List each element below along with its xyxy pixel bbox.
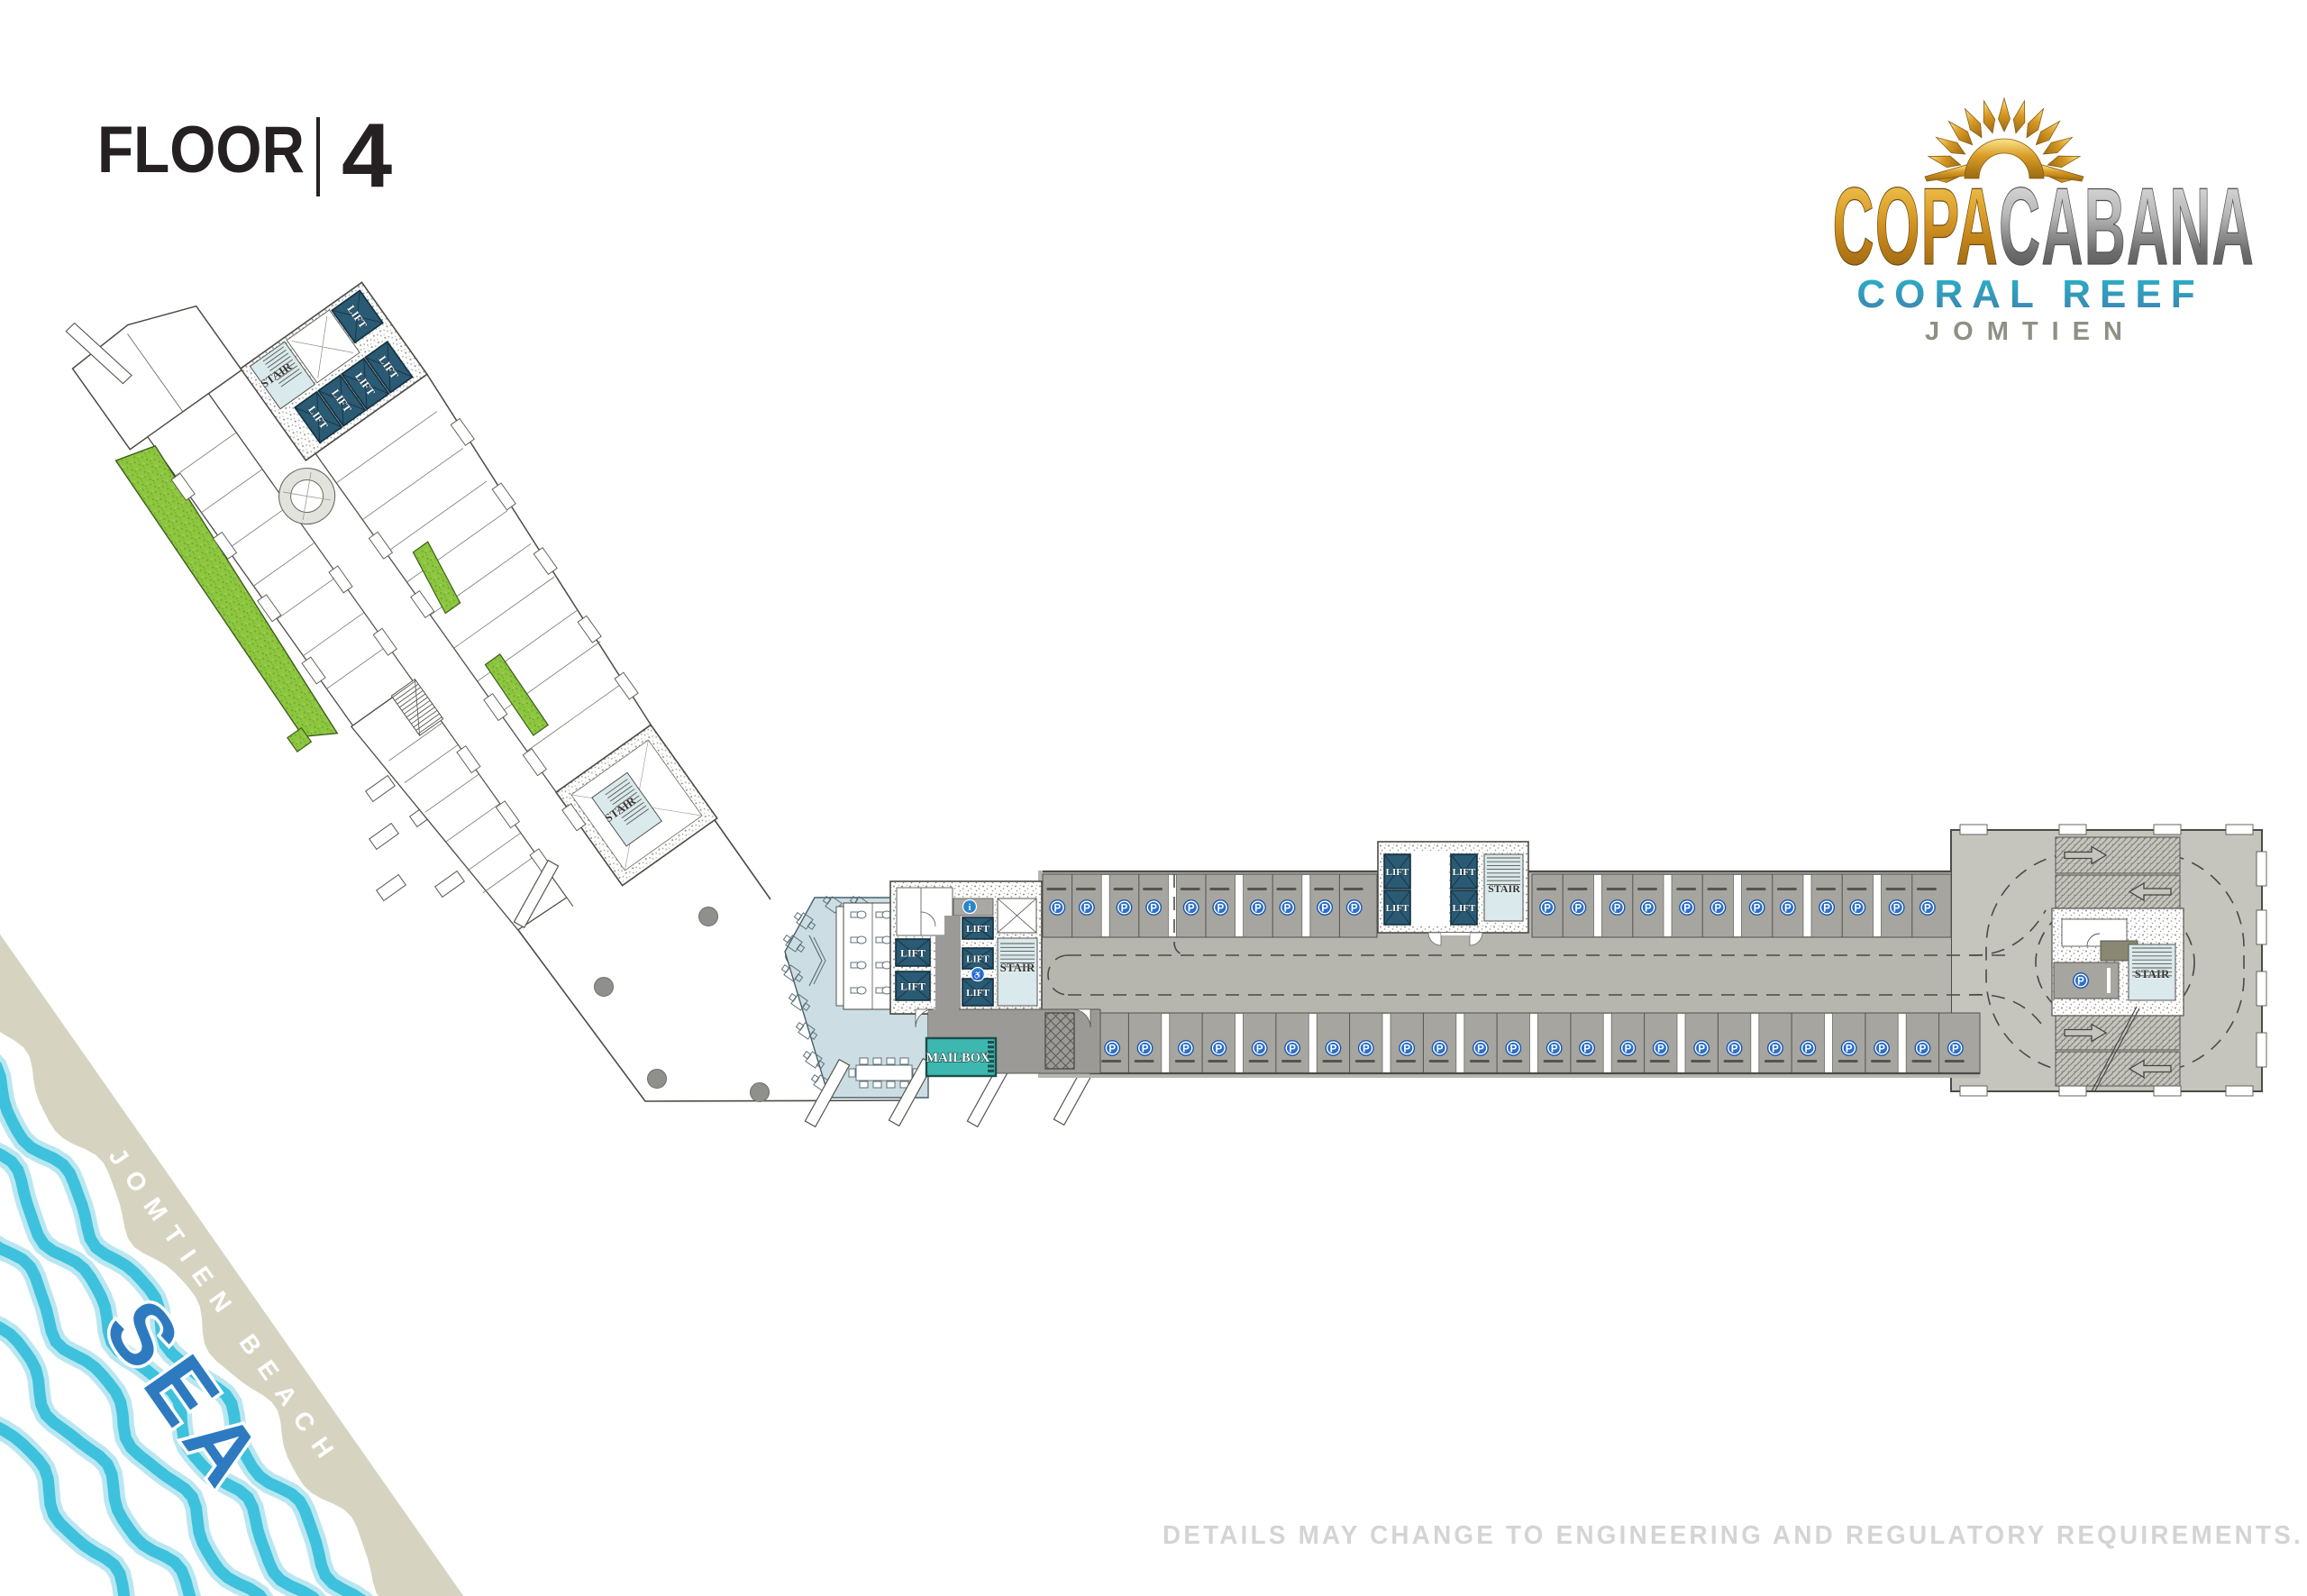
svg-text:P: P — [1182, 1044, 1190, 1054]
svg-text:STAIR: STAIR — [2135, 967, 2170, 980]
svg-text:P: P — [1614, 903, 1621, 914]
svg-text:P: P — [1403, 1044, 1410, 1054]
svg-text:P: P — [1142, 1044, 1149, 1054]
svg-text:P: P — [1823, 903, 1830, 914]
svg-text:P: P — [1731, 1044, 1738, 1054]
svg-text:P: P — [1575, 903, 1582, 914]
svg-text:P: P — [1053, 903, 1061, 914]
svg-text:P: P — [2077, 976, 2084, 987]
svg-text:P: P — [1217, 903, 1224, 914]
svg-text:P: P — [1919, 1044, 1927, 1054]
svg-text:P: P — [1351, 903, 1358, 914]
svg-text:LIFT: LIFT — [900, 980, 926, 992]
svg-text:♿: ♿ — [972, 970, 982, 980]
svg-text:P: P — [1924, 903, 1931, 914]
svg-text:P: P — [1683, 903, 1691, 914]
svg-text:P: P — [1215, 1044, 1222, 1054]
svg-text:P: P — [1150, 903, 1157, 914]
svg-text:LIFT: LIFT — [1453, 867, 1476, 878]
svg-text:P: P — [1284, 903, 1291, 914]
svg-text:LIFT: LIFT — [966, 953, 989, 964]
svg-text:STAIR: STAIR — [1000, 961, 1035, 974]
svg-text:P: P — [1321, 903, 1328, 914]
svg-text:DETAILS MAY CHANGE TO ENGINEER: DETAILS MAY CHANGE TO ENGINEERING AND RE… — [1163, 1521, 2303, 1550]
svg-text:4: 4 — [342, 105, 392, 206]
svg-text:MAILBOX: MAILBOX — [926, 1051, 990, 1065]
svg-text:P: P — [1509, 1044, 1517, 1054]
svg-text:P: P — [1121, 903, 1128, 914]
svg-text:COPA: COPA — [1833, 165, 1999, 287]
svg-text:P: P — [1583, 1044, 1591, 1054]
svg-text:P: P — [1772, 1044, 1779, 1054]
svg-text:STAIR: STAIR — [1488, 882, 1520, 895]
svg-text:P: P — [1436, 1044, 1444, 1054]
svg-text:P: P — [1083, 903, 1090, 914]
svg-text:FLOOR: FLOOR — [97, 113, 305, 187]
svg-text:LIFT: LIFT — [1386, 903, 1409, 914]
svg-text:CORAL REEF: CORAL REEF — [1856, 272, 2203, 316]
svg-text:i: i — [969, 903, 971, 913]
svg-text:P: P — [1254, 903, 1262, 914]
svg-text:P: P — [1715, 903, 1722, 914]
svg-text:P: P — [1878, 1044, 1885, 1054]
svg-text:P: P — [1330, 1044, 1337, 1054]
svg-text:P: P — [1893, 903, 1901, 914]
svg-text:P: P — [1477, 1044, 1484, 1054]
svg-text:P: P — [1657, 1044, 1664, 1054]
svg-text:P: P — [1784, 903, 1792, 914]
svg-text:P: P — [1645, 903, 1652, 914]
svg-text:LIFT: LIFT — [900, 946, 926, 959]
svg-text:LIFT: LIFT — [966, 988, 989, 999]
svg-text:P: P — [1625, 1044, 1632, 1054]
svg-text:P: P — [1544, 903, 1551, 914]
svg-text:P: P — [1855, 903, 1862, 914]
svg-text:CABANA: CABANA — [1999, 165, 2255, 287]
svg-text:P: P — [1698, 1044, 1705, 1054]
svg-text:P: P — [1754, 903, 1761, 914]
svg-text:LIFT: LIFT — [1386, 867, 1409, 878]
svg-text:P: P — [1952, 1044, 1959, 1054]
svg-text:JOMTIEN: JOMTIEN — [1925, 317, 2136, 346]
svg-text:P: P — [1188, 903, 1195, 914]
svg-text:LIFT: LIFT — [1453, 903, 1476, 914]
svg-text:P: P — [1108, 1044, 1116, 1054]
svg-text:P: P — [1846, 1044, 1853, 1054]
svg-text:P: P — [1804, 1044, 1811, 1054]
svg-text:P: P — [1289, 1044, 1296, 1054]
svg-text:P: P — [1256, 1044, 1263, 1054]
svg-text:P: P — [1551, 1044, 1558, 1054]
svg-text:P: P — [1363, 1044, 1370, 1054]
svg-text:LIFT: LIFT — [966, 924, 989, 935]
